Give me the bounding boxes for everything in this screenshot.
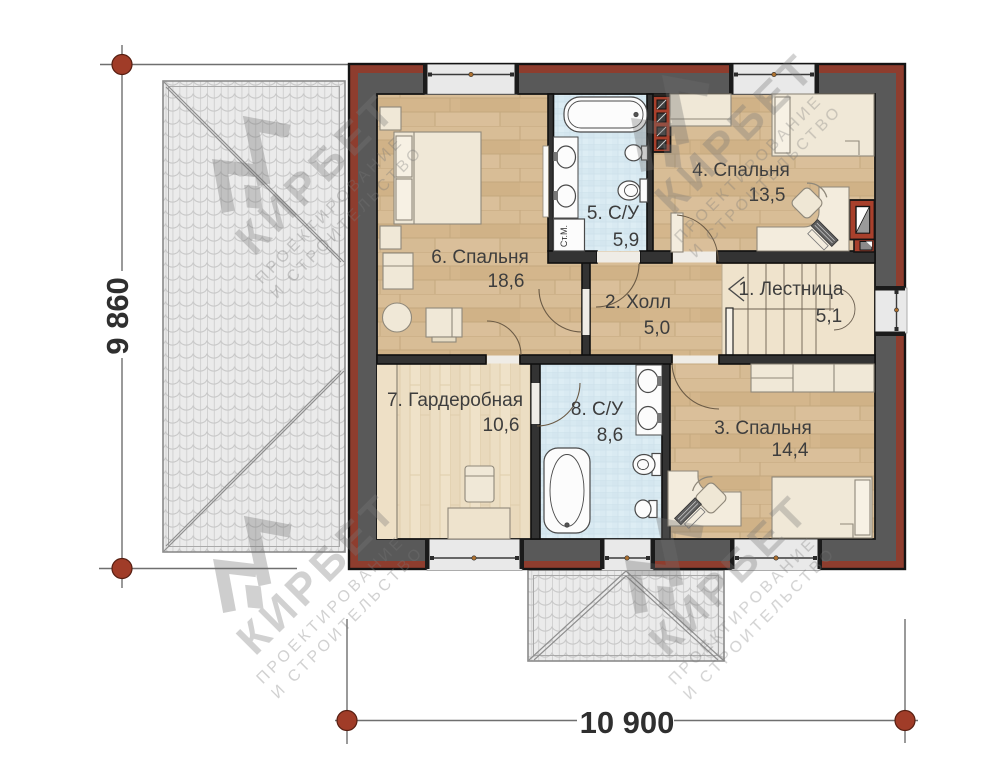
svg-text:6. Спальня: 6. Спальня [431, 247, 528, 268]
svg-text:5. С/У: 5. С/У [587, 203, 640, 224]
svg-text:Ст.М.: Ст.М. [559, 225, 569, 247]
svg-text:10 900: 10 900 [580, 705, 675, 740]
svg-text:9 860: 9 860 [100, 277, 135, 355]
svg-text:14,4: 14,4 [772, 440, 809, 461]
svg-text:10,6: 10,6 [483, 415, 520, 436]
svg-text:18,6: 18,6 [488, 271, 525, 292]
svg-text:5,9: 5,9 [613, 230, 639, 251]
svg-text:1. Лестница: 1. Лестница [739, 279, 844, 300]
svg-text:3. Спальня: 3. Спальня [714, 418, 811, 439]
svg-text:5,0: 5,0 [644, 318, 670, 339]
svg-text:2. Холл: 2. Холл [605, 292, 671, 313]
svg-text:8,6: 8,6 [597, 425, 623, 446]
svg-text:7. Гардеробная: 7. Гардеробная [387, 390, 523, 411]
svg-text:8. С/У: 8. С/У [571, 399, 624, 420]
svg-text:5,1: 5,1 [816, 306, 842, 327]
